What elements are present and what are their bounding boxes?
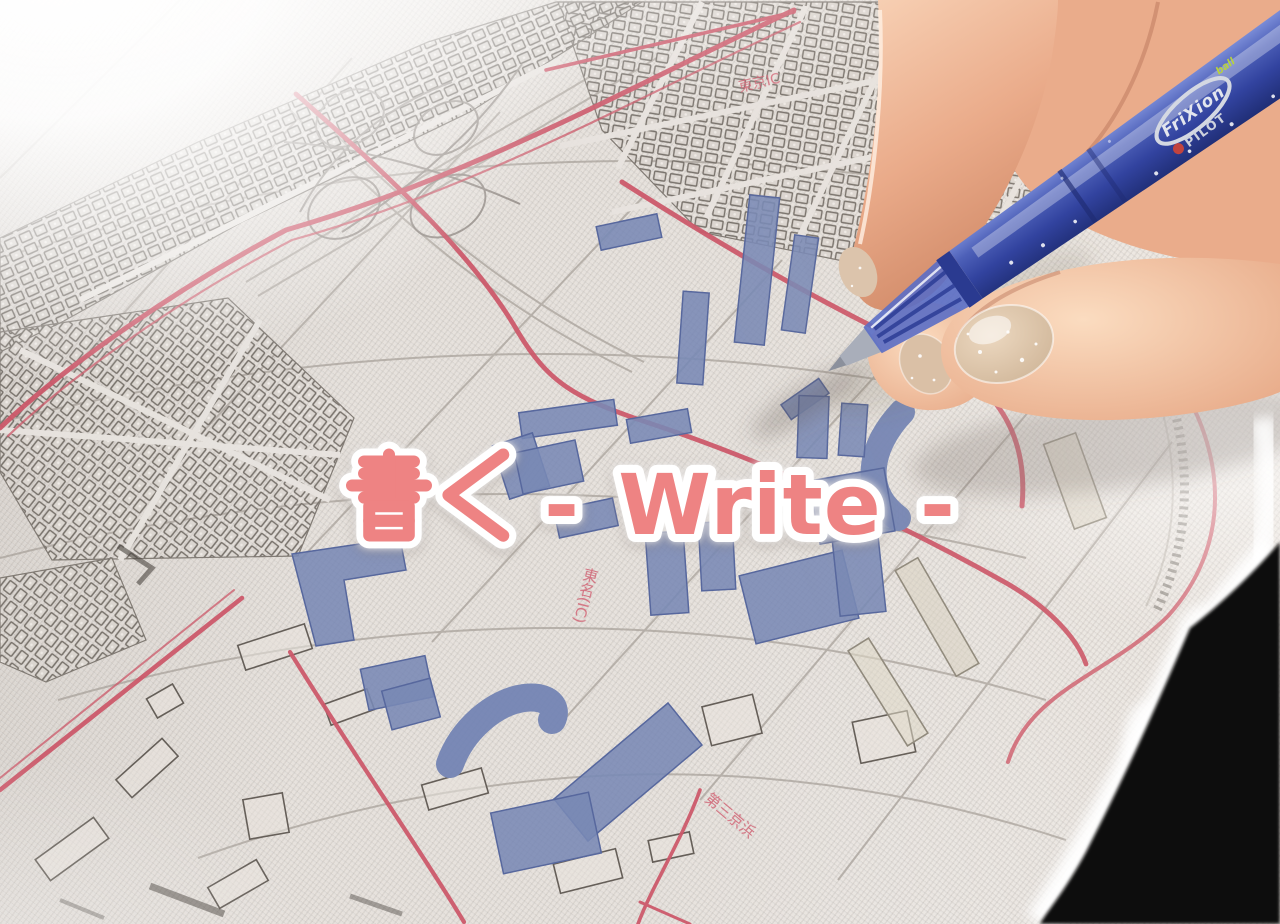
photo: 東京IC 東名(IC) 第三京浜 [0, 0, 1280, 924]
caption-overlay: - Write - - Write - [0, 0, 1280, 924]
caption-latin: - Write - [544, 456, 956, 554]
caption: - Write - - Write - [352, 455, 956, 554]
